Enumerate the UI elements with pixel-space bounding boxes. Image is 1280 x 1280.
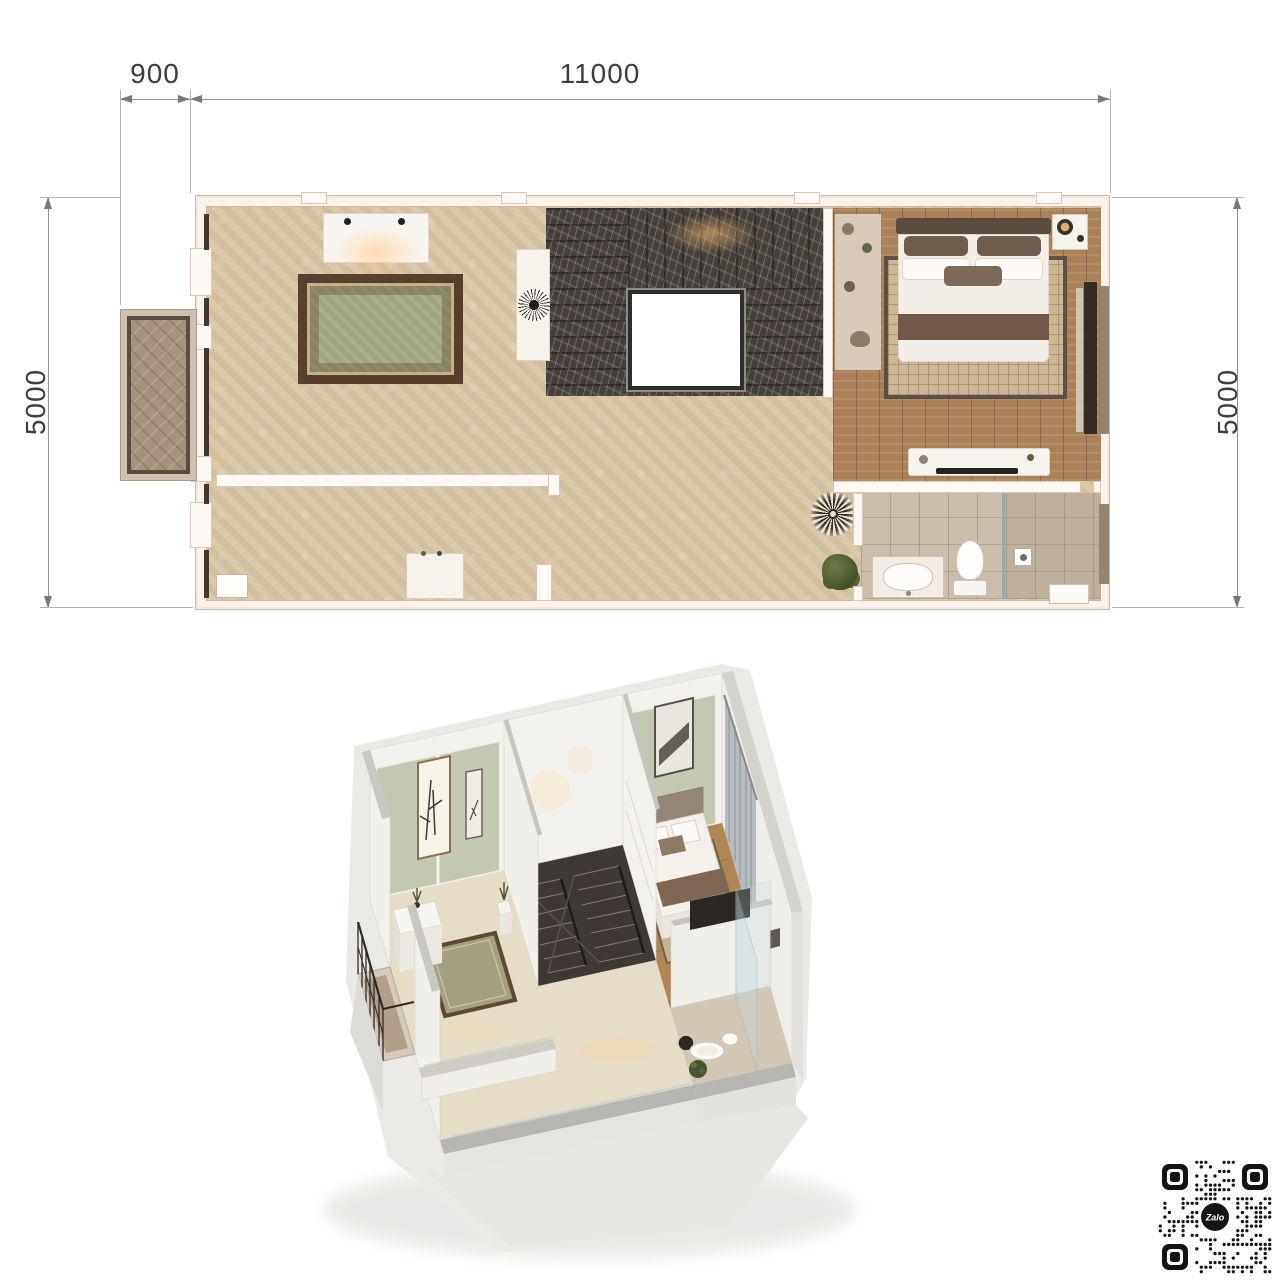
wall-end-cap — [548, 474, 560, 496]
extension-line — [190, 90, 191, 193]
corridor-cabinet — [406, 553, 464, 599]
decor-item — [437, 551, 442, 556]
decor-item — [421, 551, 426, 556]
window-curtain — [1084, 282, 1097, 434]
potted-plant — [822, 554, 858, 590]
tv-console — [908, 448, 1050, 476]
qr-finder-pattern — [1242, 1164, 1268, 1190]
sunburst-center — [529, 300, 539, 310]
extension-line — [40, 197, 120, 198]
window-frame-dark — [204, 214, 209, 250]
dimension-line — [120, 99, 1110, 100]
arrowhead — [44, 197, 52, 209]
lamp-glow — [334, 228, 420, 276]
bath-west-wall — [853, 586, 863, 601]
arrowhead — [1098, 95, 1110, 103]
tv-screen — [936, 468, 1018, 474]
decor-item — [842, 223, 854, 235]
bedroom-west-wall — [823, 208, 833, 398]
faucet — [906, 591, 911, 596]
qr-finder-pattern — [1162, 1164, 1188, 1190]
extension-line — [120, 90, 121, 305]
qr-finder-pattern — [1162, 1244, 1188, 1270]
zalo-logo-badge: Zalo — [1201, 1203, 1229, 1231]
sconce — [344, 218, 351, 225]
living-area-rug — [298, 274, 463, 384]
bath-bedroom-wall — [1093, 481, 1101, 493]
entry-door — [216, 574, 248, 598]
extension-line — [1112, 607, 1244, 608]
dimension-line — [1237, 197, 1238, 608]
table-lamp — [1057, 219, 1073, 235]
bedroom-shelf-unit — [835, 214, 881, 370]
sheer-curtain — [1076, 288, 1083, 432]
wall-stub — [536, 564, 552, 601]
floor-glow — [580, 1038, 656, 1062]
toilet-bowl — [956, 540, 984, 580]
bath-bedroom-wall — [833, 481, 1081, 493]
living-sideboard — [323, 213, 429, 263]
pilaster — [190, 248, 212, 296]
plant-3d — [689, 1060, 707, 1078]
zalo-logo-text: Zalo — [1205, 1213, 1225, 1223]
dimension-line — [48, 197, 49, 608]
nightstand — [1052, 214, 1088, 250]
arrowhead — [120, 95, 132, 103]
pilaster — [501, 192, 527, 204]
balcony-floor — [127, 316, 190, 474]
headboard — [896, 218, 1051, 234]
balcony — [120, 309, 197, 481]
pilaster — [794, 192, 820, 204]
bath-west-wall — [853, 493, 863, 546]
duvet-fold — [898, 314, 1049, 340]
sunburst-mirror — [518, 289, 550, 321]
shower-head — [1014, 548, 1032, 566]
decor-item — [1077, 235, 1084, 242]
decor-item — [844, 281, 855, 292]
wall-light-glow — [530, 770, 570, 810]
pillow — [904, 236, 968, 256]
toilet-3d — [722, 1033, 738, 1045]
pilaster — [190, 502, 212, 548]
wall-light-glow — [566, 746, 594, 774]
dim-value-11000: 11000 — [500, 60, 700, 88]
bath-door — [1049, 584, 1089, 604]
accent-pillow — [944, 266, 1002, 286]
sink-basin — [883, 563, 933, 591]
floor-plan-sheet: { "dimensions": { "top_offset": "900", "… — [0, 0, 1280, 1280]
ceiling-light-glow — [666, 214, 756, 254]
decor-item — [850, 331, 870, 347]
decor-item — [1027, 454, 1034, 461]
arrowhead — [1233, 197, 1241, 209]
dim-value-900: 900 — [110, 60, 200, 88]
decor-item — [862, 243, 872, 253]
stairwell-void — [628, 290, 744, 390]
medallion-center — [828, 509, 838, 519]
arrowhead — [178, 95, 190, 103]
pilaster — [301, 192, 327, 204]
vanity — [872, 556, 944, 598]
extension-line — [1112, 197, 1244, 198]
pillow — [977, 236, 1041, 256]
shower-head-nozzle — [1020, 554, 1027, 561]
dim-value-5000-left: 5000 — [22, 360, 50, 444]
window-frame-dark — [204, 484, 209, 504]
window-frame-dark — [204, 298, 209, 326]
zalo-qr-code: Zalo — [1158, 1160, 1272, 1274]
extension-line — [1110, 90, 1111, 193]
stair-treads — [546, 208, 628, 396]
arrowhead — [190, 95, 202, 103]
toilet — [953, 540, 987, 598]
small-artwork — [466, 769, 482, 839]
toilet-tank — [953, 580, 987, 596]
floor-plan-2d — [195, 195, 1110, 610]
floor-plan-3d-isometric — [250, 650, 1070, 1280]
window-frame-dark — [204, 550, 209, 598]
window-frame — [1099, 286, 1109, 434]
balcony-door-frame — [204, 348, 209, 456]
pilaster — [1036, 192, 1062, 204]
decor-item — [919, 455, 928, 464]
floor-glow — [446, 1020, 506, 1040]
bed — [896, 218, 1051, 366]
extension-line — [40, 607, 193, 608]
medallion-rug — [811, 492, 855, 536]
half-wall — [216, 474, 558, 487]
sconce — [398, 218, 405, 225]
